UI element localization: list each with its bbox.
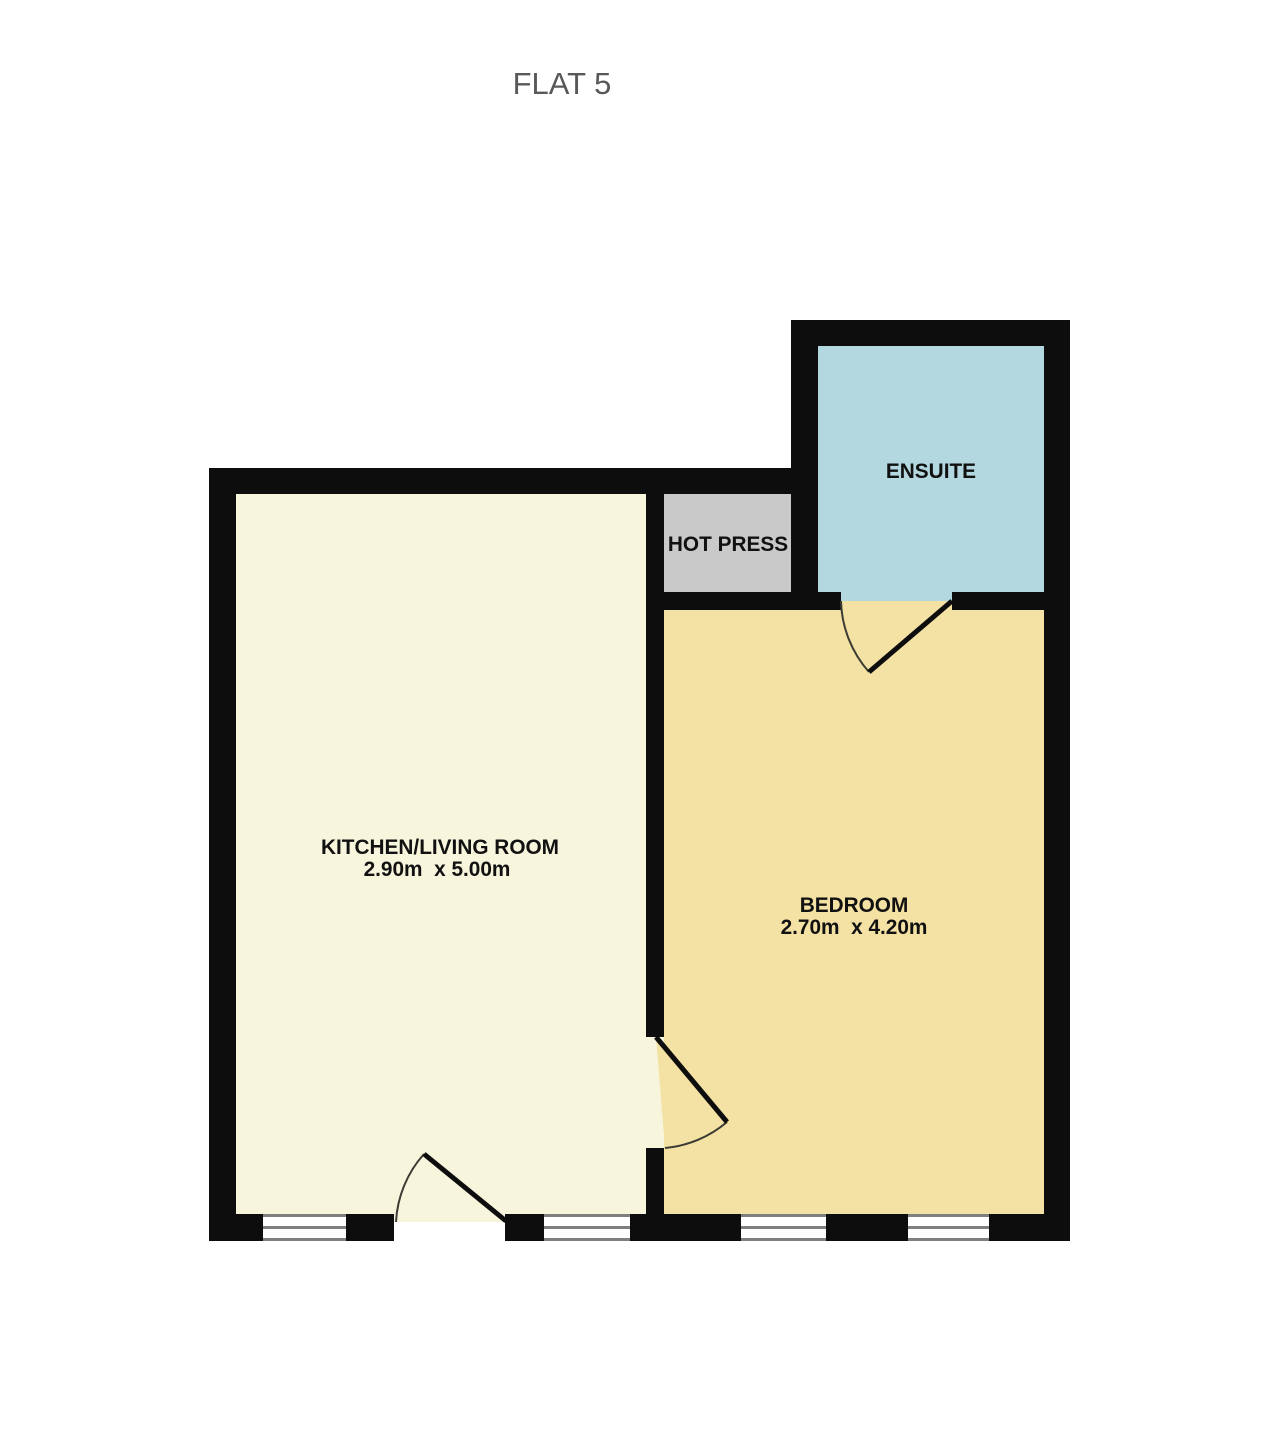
svg-text:FLAT 5: FLAT 5 [513,66,612,101]
svg-text:KITCHEN/LIVING ROOM: KITCHEN/LIVING ROOM [321,836,559,859]
svg-text:ENSUITE: ENSUITE [886,460,976,483]
svg-text:2.90m x 5.00m: 2.90m x 5.00m [364,858,511,881]
svg-text:2.70m x 4.20m: 2.70m x 4.20m [781,916,928,939]
svg-text:BEDROOM: BEDROOM [800,894,909,917]
svg-text:HOT PRESS: HOT PRESS [668,533,788,556]
